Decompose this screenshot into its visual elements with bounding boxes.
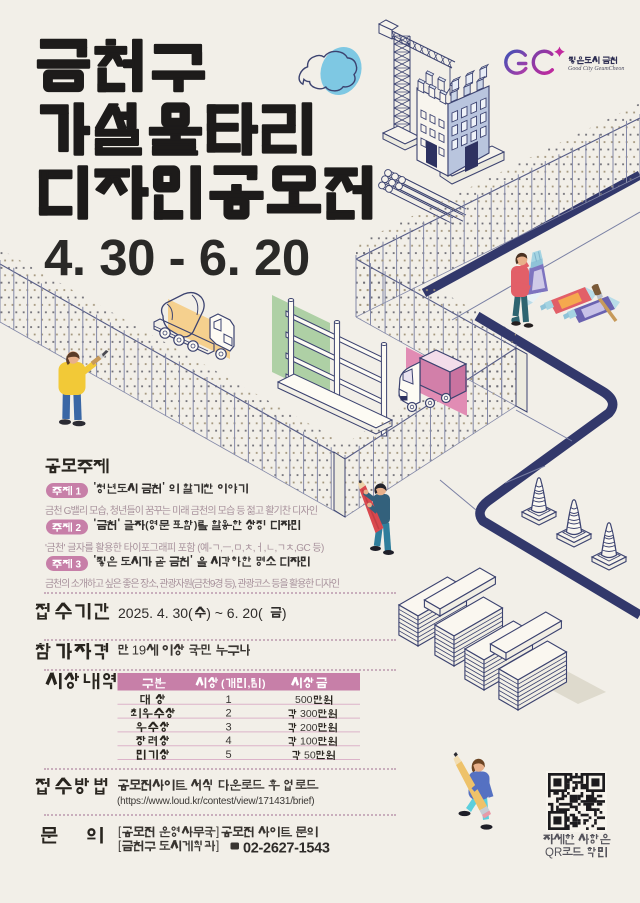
svg-text:2: 2 xyxy=(225,708,231,720)
svg-text:5: 5 xyxy=(225,749,231,761)
svg-text:200: 200 xyxy=(300,722,318,734)
svg-text:19: 19 xyxy=(132,643,146,658)
svg-text:[: [ xyxy=(118,827,122,839)
svg-text:3: 3 xyxy=(225,721,231,733)
svg-text:': ' xyxy=(94,517,97,529)
svg-text:,: , xyxy=(248,678,251,690)
svg-text:2: 2 xyxy=(76,523,82,534)
svg-text:]: ] xyxy=(216,827,219,839)
svg-text:[: [ xyxy=(118,841,122,853)
svg-text:]: ] xyxy=(216,841,219,853)
svg-text:): ) xyxy=(282,605,287,621)
svg-text:): ) xyxy=(262,678,266,690)
svg-text:': ' xyxy=(118,517,121,529)
svg-text:(: ( xyxy=(221,678,225,690)
svg-text:': ' xyxy=(94,554,97,566)
svg-text:300: 300 xyxy=(300,708,318,720)
svg-text:): ) xyxy=(194,520,198,532)
svg-text:) ~ 6. 20(: ) ~ 6. 20( xyxy=(206,605,263,621)
svg-text:2025. 4. 30(: 2025. 4. 30( xyxy=(118,605,193,621)
svg-text:50: 50 xyxy=(304,749,316,761)
svg-text:4: 4 xyxy=(225,735,231,747)
svg-text:100: 100 xyxy=(300,736,318,748)
svg-text:(: ( xyxy=(145,520,149,532)
svg-text:1: 1 xyxy=(225,694,231,706)
svg-text:3: 3 xyxy=(76,560,82,571)
svg-text:QR: QR xyxy=(545,847,562,859)
svg-text:': ' xyxy=(94,481,97,493)
svg-text:': ' xyxy=(190,554,193,566)
svg-text:': ' xyxy=(162,481,165,493)
svg-text:500: 500 xyxy=(295,694,313,706)
svg-text:02-2627-1543: 02-2627-1543 xyxy=(243,841,330,857)
svg-text:1: 1 xyxy=(76,487,82,498)
